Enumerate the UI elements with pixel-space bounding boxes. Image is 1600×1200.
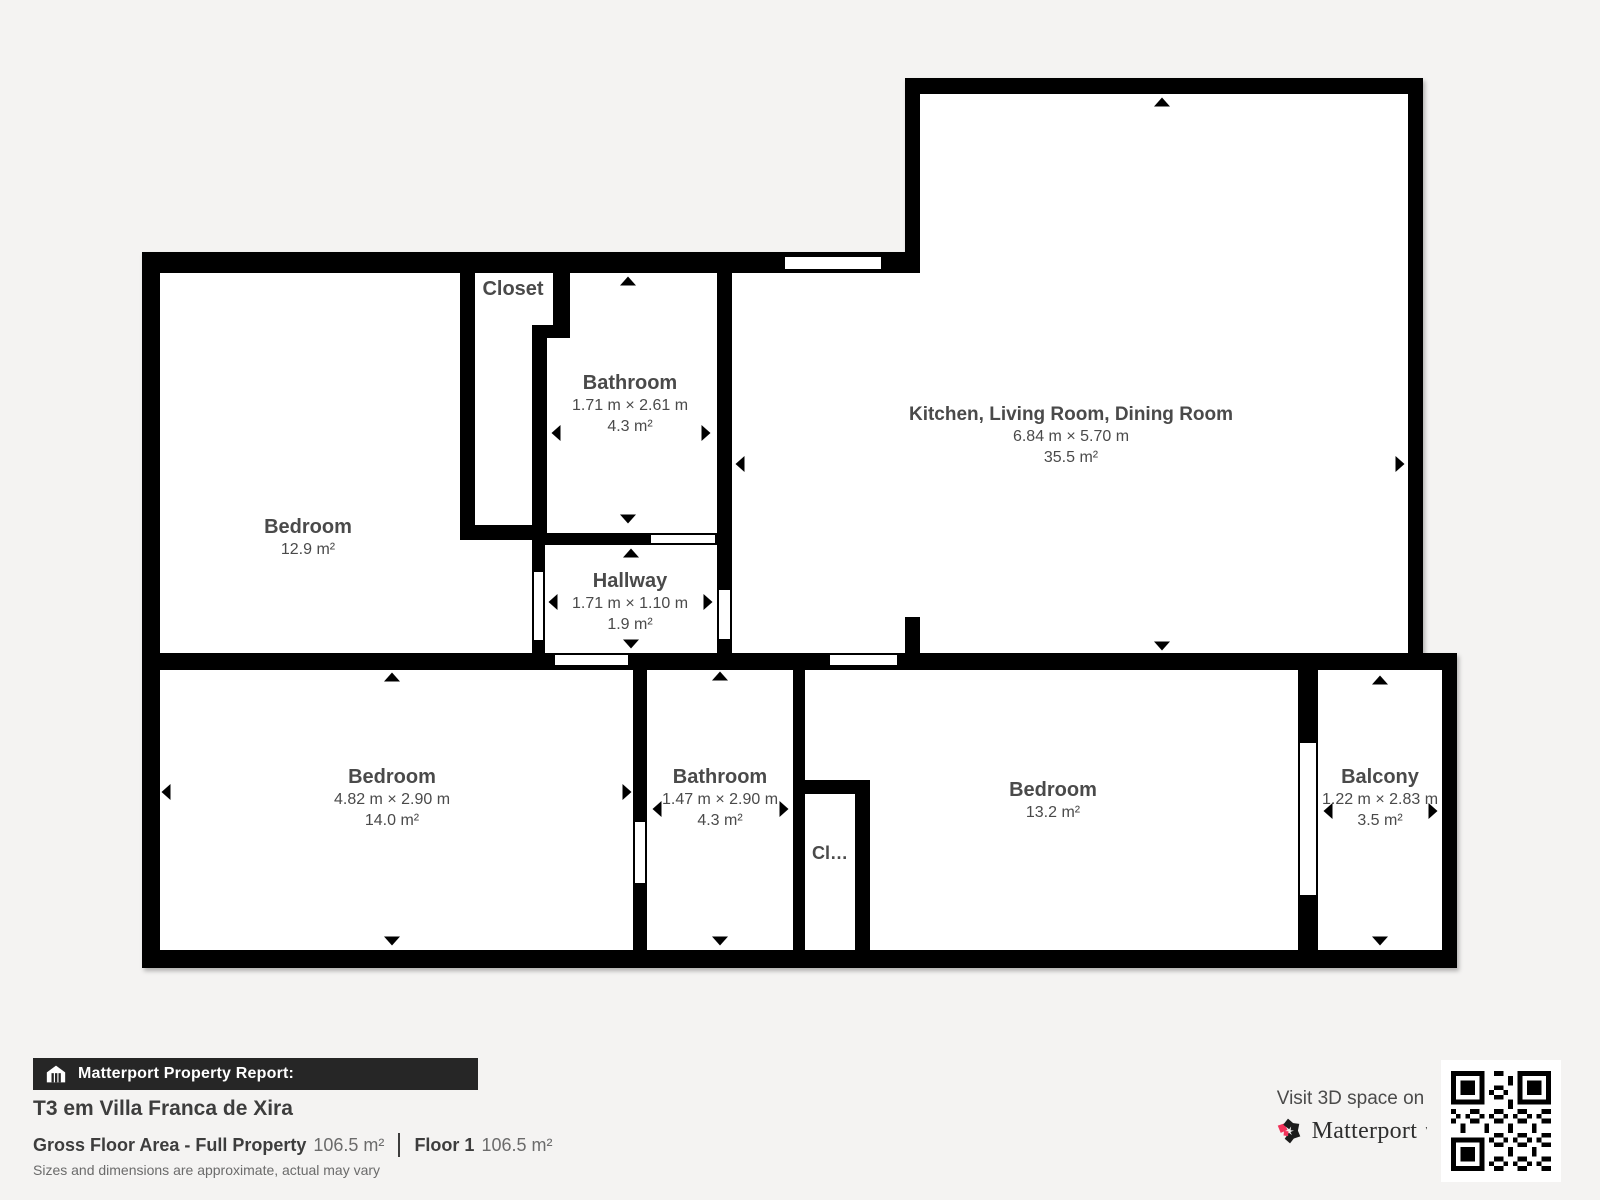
wall-bedroom-closet [460, 252, 475, 540]
window-opening-top-wall [785, 257, 881, 269]
door-opening-kitchen-bedroom-right [830, 655, 897, 665]
room-label-closet: Closet [482, 278, 543, 301]
wall-outer-right-upper [1408, 78, 1423, 670]
dimension-arrow-up [623, 549, 639, 558]
dimension-arrow-down [620, 515, 636, 524]
wall-bedroom-bathroom-bottom [633, 653, 647, 950]
dimension-arrow-down [712, 937, 728, 946]
dimension-arrow-right [702, 425, 711, 441]
dimension-arrow-right [704, 594, 713, 610]
room-name: Bedroom [1009, 779, 1097, 802]
room-label-closet-small: Cl… [812, 843, 848, 864]
dimension-arrow-left [653, 801, 662, 817]
door-opening-bathroom-bottom [635, 822, 645, 883]
visit-3d-space-text: Visit 3D space on [1258, 1088, 1443, 1110]
matterport-trademark: ’ [1425, 1126, 1427, 1137]
room-name: Bedroom [334, 766, 450, 789]
room-name: Cl… [812, 843, 848, 864]
room-area: 4.3 m² [572, 416, 688, 437]
floor-label: Floor 1 [414, 1135, 474, 1156]
room-label-balcony: Balcony 1.22 m × 2.83 m 3.5 m² [1322, 766, 1438, 831]
dimension-arrow-down [623, 640, 639, 649]
gross-floor-area-value: 106.5 m² [313, 1135, 384, 1156]
floor-plan: Bedroom 12.9 m² Closet Bathroom 1.71 m ×… [0, 0, 1600, 1200]
room-area: 1.9 m² [572, 614, 688, 635]
wall-kitchen-top [905, 78, 1423, 94]
room-bedroom-top [160, 273, 460, 653]
room-name: Kitchen, Living Room, Dining Room [909, 404, 1233, 426]
qr-code [1441, 1060, 1561, 1182]
room-dimensions: 4.82 m × 2.90 m [334, 789, 450, 810]
visit-3d-space-block: Visit 3D space on Matterport’ [1258, 1088, 1443, 1146]
wall-kitchen-notch-vertical [905, 78, 920, 273]
floor-area-summary: Gross Floor Area - Full Property 106.5 m… [33, 1133, 553, 1157]
property-title: T3 em Villa Franca de Xira [33, 1097, 293, 1121]
room-label-bedroom-right: Bedroom 13.2 m² [1009, 779, 1097, 823]
wall-closet-bottom [460, 525, 532, 540]
dimension-arrow-up [1154, 98, 1170, 107]
matterport-wordmark: Matterport [1312, 1118, 1418, 1145]
room-label-hallway: Hallway 1.71 m × 1.10 m 1.9 m² [572, 570, 688, 635]
wall-outer-left [142, 252, 160, 968]
room-area: 35.5 m² [909, 447, 1233, 468]
matterport-logo: Matterport’ [1258, 1116, 1443, 1146]
dimension-arrow-left [552, 425, 561, 441]
matterport-pinwheel-icon [1274, 1116, 1304, 1146]
room-area: 12.9 m² [264, 539, 352, 560]
room-bathroom-top-upper [570, 273, 717, 338]
door-opening-hallway-bottom [555, 655, 628, 665]
dimension-arrow-up [384, 673, 400, 682]
room-label-bathroom-top: Bathroom 1.71 m × 2.61 m 4.3 m² [572, 372, 688, 437]
room-name: Bathroom [662, 766, 778, 789]
dimension-arrow-up [620, 277, 636, 286]
room-closet-top-lower [475, 325, 532, 525]
wall-kitchen-stub [905, 617, 920, 653]
room-dimensions: 1.71 m × 1.10 m [572, 593, 688, 614]
dimension-arrow-right [780, 801, 789, 817]
door-opening-balcony [1300, 743, 1316, 895]
dimension-arrow-down [384, 937, 400, 946]
room-area: 13.2 m² [1009, 802, 1097, 823]
room-kitchen-upper [920, 94, 1408, 273]
room-dimensions: 1.71 m × 2.61 m [572, 395, 688, 416]
dimension-arrow-left [549, 594, 558, 610]
dimension-arrow-right [1396, 456, 1405, 472]
dimension-arrow-right [623, 784, 632, 800]
room-name: Closet [482, 278, 543, 301]
wall-closet-bathroom-lower [532, 338, 547, 533]
gross-floor-area-label: Gross Floor Area - Full Property [33, 1135, 306, 1156]
wall-outer-bottom [142, 950, 1457, 968]
separator [398, 1133, 400, 1157]
wall-balcony-right [1442, 653, 1457, 968]
wall-closet-small-right [855, 780, 870, 950]
dimension-arrow-down [1372, 937, 1388, 946]
room-area: 4.3 m² [662, 810, 778, 831]
room-name: Hallway [572, 570, 688, 593]
dimension-arrow-left [162, 784, 171, 800]
dimension-arrow-down [1154, 642, 1170, 651]
room-name: Bedroom [264, 516, 352, 539]
report-header-bar: Matterport Property Report: [33, 1058, 478, 1090]
door-opening-bathroom-top [651, 535, 715, 543]
dimension-arrow-up [1372, 676, 1388, 685]
room-area: 14.0 m² [334, 810, 450, 831]
door-opening-hallway-kitchen [719, 590, 730, 639]
dimension-arrow-left [736, 456, 745, 472]
floor-value: 106.5 m² [481, 1135, 552, 1156]
room-label-bathroom-bottom: Bathroom 1.47 m × 2.90 m 4.3 m² [662, 766, 778, 831]
room-dimensions: 6.84 m × 5.70 m [909, 426, 1233, 447]
room-bedroom-top-extension [460, 540, 532, 653]
room-name: Balcony [1322, 766, 1438, 789]
matterport-floorplan-report-page: Bedroom 12.9 m² Closet Bathroom 1.71 m ×… [0, 0, 1600, 1200]
dimension-arrow-up [712, 672, 728, 681]
door-opening-hallway-bedroom [534, 572, 543, 640]
wall-bathroom-bottom-right [793, 653, 805, 950]
matterport-house-icon [46, 1064, 66, 1084]
room-label-bedroom-left: Bedroom 4.82 m × 2.90 m 14.0 m² [334, 766, 450, 831]
report-bar-label: Matterport Property Report: [78, 1065, 294, 1083]
room-name: Bathroom [572, 372, 688, 395]
room-area: 3.5 m² [1322, 810, 1438, 831]
disclaimer-text: Sizes and dimensions are approximate, ac… [33, 1162, 380, 1178]
room-dimensions: 1.22 m × 2.83 m [1322, 789, 1438, 810]
wall-closet-bathroom-step [532, 325, 570, 338]
room-label-bedroom-top: Bedroom 12.9 m² [264, 516, 352, 560]
room-dimensions: 1.47 m × 2.90 m [662, 789, 778, 810]
wall-closet-bathroom-upper [553, 273, 570, 325]
room-label-kitchen-living-dining: Kitchen, Living Room, Dining Room 6.84 m… [909, 404, 1233, 468]
